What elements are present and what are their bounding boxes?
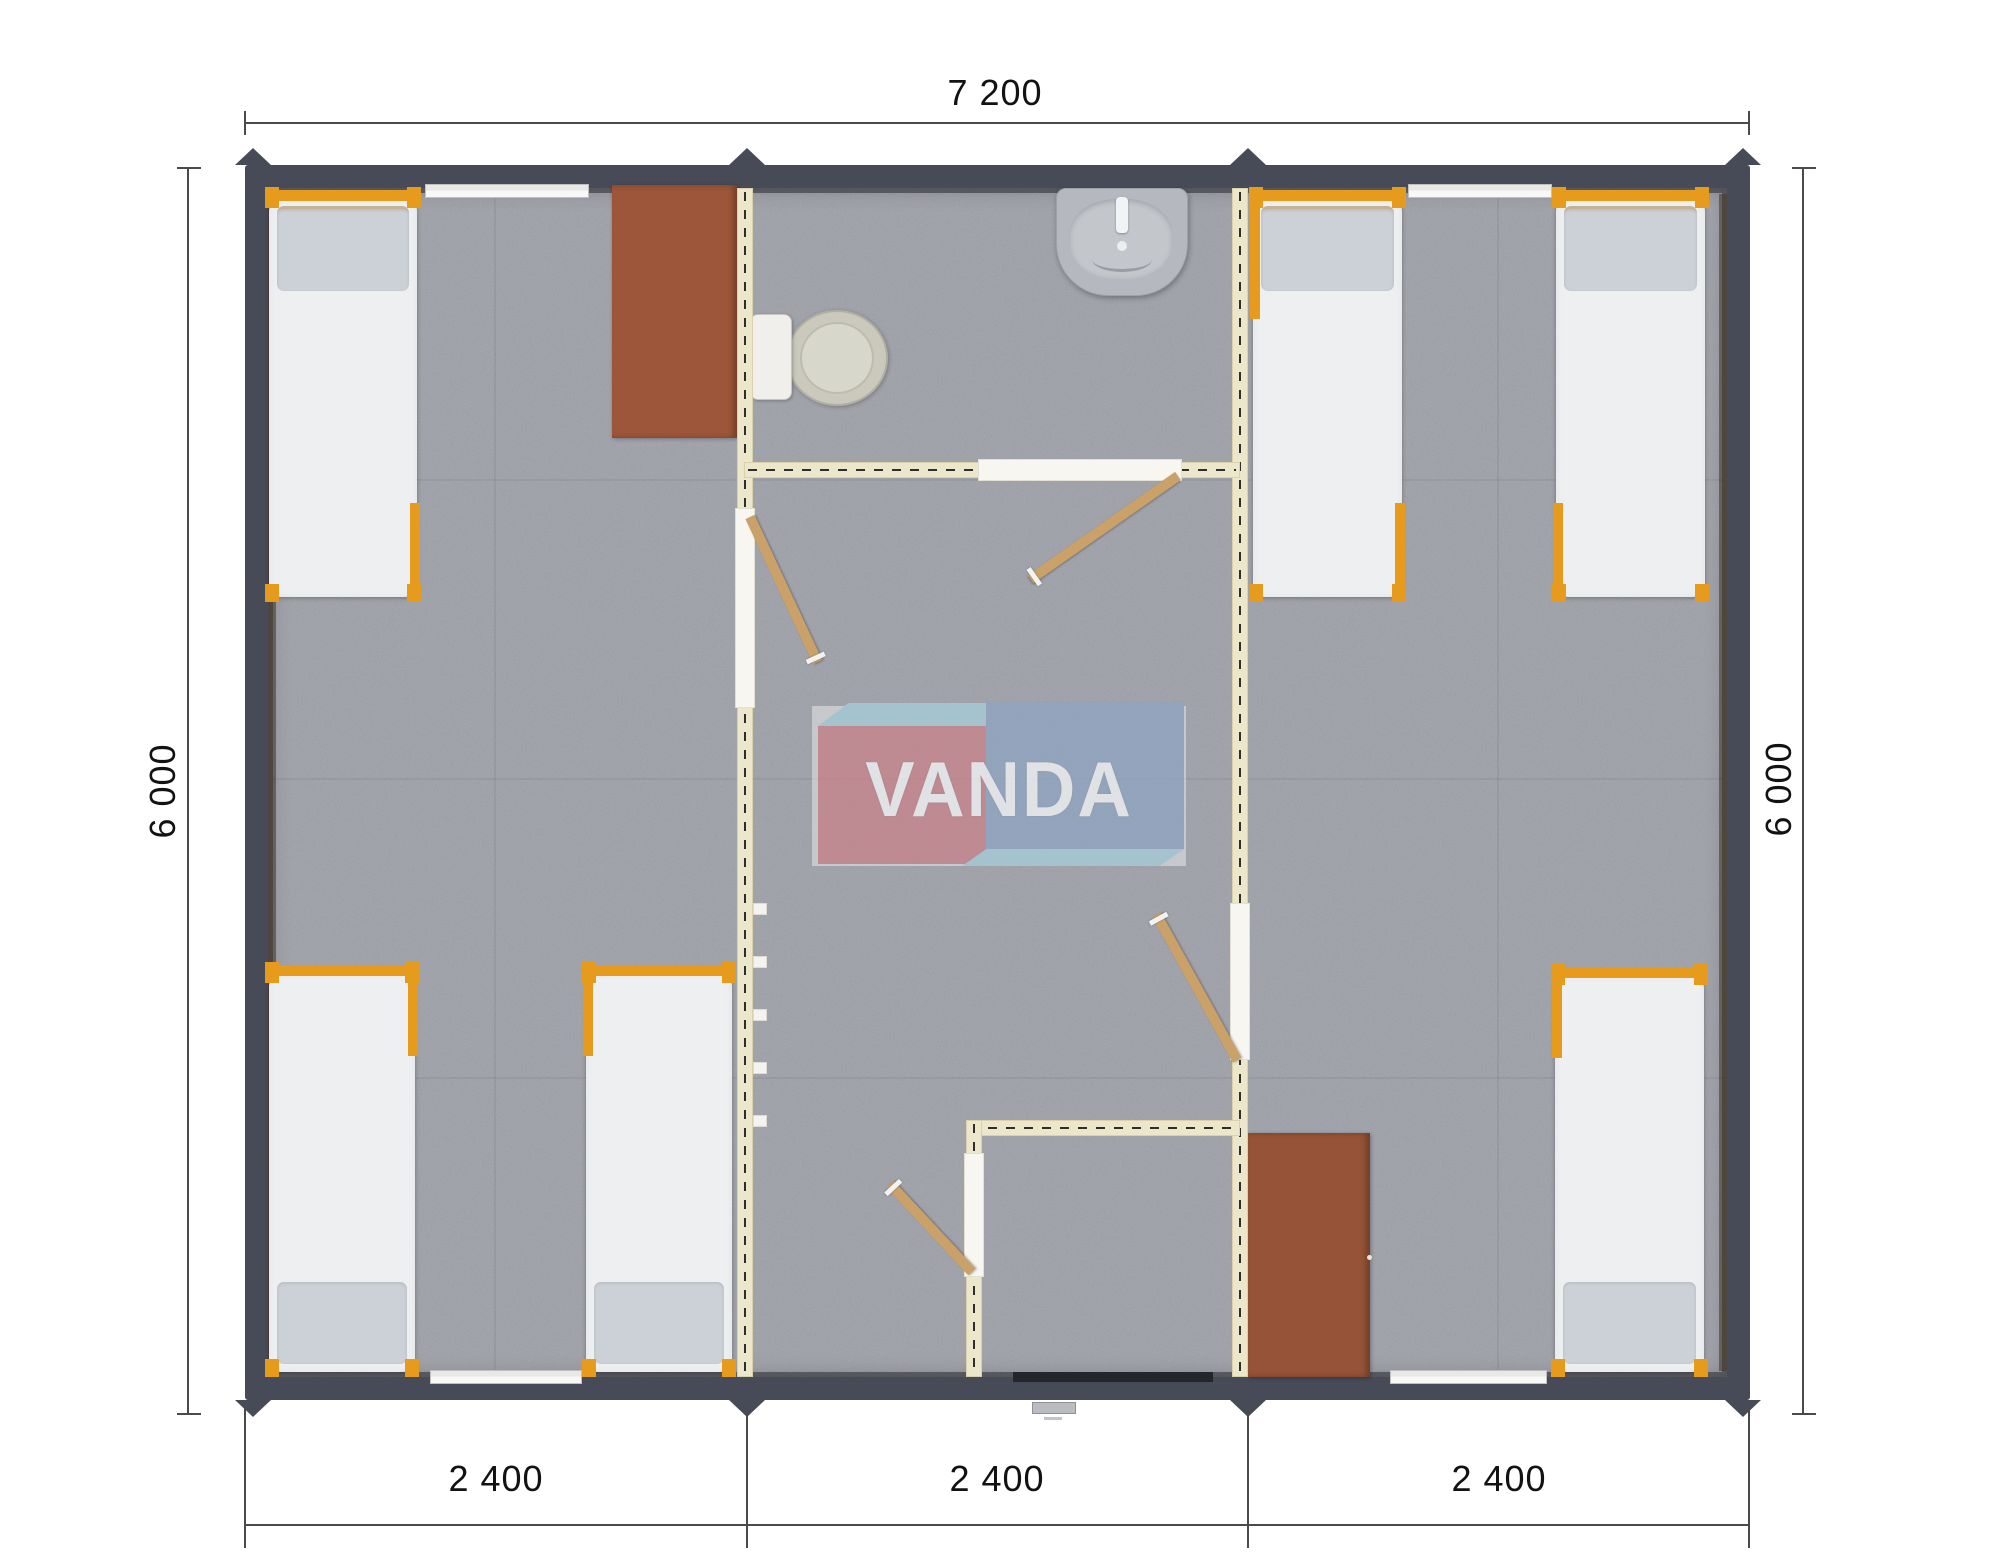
bed-frame-corner (1551, 1359, 1565, 1377)
desk (1248, 1133, 1370, 1377)
logo-bevel-bottom (962, 849, 1184, 866)
partition-wall-right (1232, 188, 1248, 1377)
roof-joint-marker (729, 148, 765, 165)
floor-plan: 7 200 6 000 6 000 2 400 2 400 2 400 (0, 0, 2000, 1566)
dimension-left-label: 6 000 (142, 691, 184, 891)
window-top-left (425, 184, 589, 198)
bed-frame-rail (1553, 503, 1563, 599)
door-opening-bathroom (978, 459, 1182, 481)
bed-frame-bar (1553, 190, 1708, 201)
bed (1553, 190, 1708, 602)
dimension-left-tick-top (177, 167, 201, 169)
bed (266, 190, 420, 602)
bed-frame-bar (1250, 190, 1405, 201)
dimension-bottom-tick-2 (746, 1408, 748, 1548)
bed (1250, 190, 1405, 602)
dimension-right-line (1802, 168, 1804, 1415)
bed-frame-corner (265, 187, 279, 208)
dimension-left-tick-bottom (177, 1413, 201, 1415)
door-opening-left-room (735, 508, 755, 708)
bed-frame-rail (410, 503, 420, 599)
shower-room-wall-top (966, 1120, 1240, 1136)
bed-frame-bar (266, 190, 420, 201)
wall-stud-marker (753, 903, 767, 915)
bed-frame-rail (583, 974, 593, 1056)
bed-frame-corner (265, 962, 279, 983)
bed-frame-bar (266, 965, 418, 976)
bed-frame-rail (1250, 199, 1260, 319)
logo-text: VANDA (838, 750, 1161, 828)
dimension-bottom-tick-4 (1748, 1408, 1750, 1548)
window-top-right (1408, 184, 1552, 198)
dimension-bottom-tick-3 (1247, 1408, 1249, 1548)
bed-frame-rail (1552, 976, 1562, 1058)
dimension-bottom-label-1: 2 400 (346, 1458, 646, 1500)
toilet-seat (800, 322, 874, 394)
faucet-icon (1116, 197, 1128, 233)
roof-joint-marker (1230, 148, 1266, 165)
dimension-top-tick-right (1748, 111, 1750, 135)
bed-frame-corner (1695, 187, 1709, 208)
roof-joint-marker (235, 1400, 271, 1417)
dimension-top-label: 7 200 (845, 72, 1145, 114)
bed-frame-rail (408, 974, 418, 1056)
dimension-bottom-label-2: 2 400 (847, 1458, 1147, 1500)
bed-frame-corner (582, 1359, 596, 1377)
wall-stud-marker (753, 1009, 767, 1021)
bed-frame-corner (265, 584, 279, 602)
door-opening-right-room (1230, 903, 1250, 1060)
wall-stud-marker (753, 1115, 767, 1127)
entrance-step (1032, 1402, 1076, 1414)
wall-lining-right (1719, 194, 1727, 1371)
toilet-tank (750, 314, 792, 400)
bed-frame-rail (1395, 503, 1405, 599)
entrance-step-edge (1044, 1417, 1062, 1420)
carpet-seam (272, 1077, 1723, 1079)
bed-frame-corner (1695, 584, 1709, 602)
bed-frame-corner (265, 1359, 279, 1377)
bed (1552, 967, 1707, 1377)
entrance-door-threshold (1013, 1372, 1213, 1382)
dimension-bottom-label-3: 2 400 (1349, 1458, 1649, 1500)
bed-frame-corner (405, 1359, 419, 1377)
wall-stud-marker (753, 1062, 767, 1074)
toilet (750, 308, 888, 404)
bed (583, 965, 735, 1377)
dimension-top-line (245, 122, 1750, 124)
desk-handle (1367, 1255, 1372, 1260)
bed-frame-corner (722, 1359, 736, 1377)
bed-frame-corner (722, 962, 736, 983)
bed-frame-corner (1249, 584, 1263, 602)
bed (266, 965, 418, 1377)
dimension-right-tick-top (1792, 167, 1816, 169)
dimension-right-label: 6 000 (1758, 689, 1800, 889)
dimension-bottom-tick-1 (244, 1408, 246, 1548)
bed-frame-corner (1552, 187, 1566, 208)
dimension-right-tick-bottom (1792, 1413, 1816, 1415)
bed-frame-corner (407, 187, 421, 208)
bed-frame-corner (1694, 964, 1708, 985)
washbasin (1056, 188, 1188, 296)
window-bottom-left (430, 1370, 582, 1384)
window-bottom-right (1390, 1370, 1547, 1384)
bed-pillow (1564, 206, 1697, 291)
bed-pillow (277, 1282, 407, 1364)
carpet-seam (494, 194, 496, 1371)
dimension-left-line (187, 168, 189, 1415)
roof-joint-marker (1725, 148, 1761, 165)
bed-pillow (1261, 206, 1394, 291)
drain-icon (1117, 241, 1127, 251)
bed-frame-bar (583, 965, 735, 976)
bed-pillow (594, 1282, 724, 1364)
dimension-bottom-line (245, 1524, 1750, 1526)
bed-frame-bar (1552, 967, 1707, 978)
roof-joint-marker (1725, 1400, 1761, 1417)
dimension-top-tick-left (244, 111, 246, 135)
vanda-logo-watermark: VANDA (810, 698, 1188, 874)
roof-joint-marker (235, 148, 271, 165)
desk (612, 185, 737, 438)
partition-wall-left (737, 188, 753, 1377)
carpet-seam (1497, 194, 1499, 1371)
bed-pillow (277, 206, 409, 291)
bed-pillow (1563, 1282, 1696, 1364)
wall-stud-marker (753, 956, 767, 968)
bed-frame-corner (1694, 1359, 1708, 1377)
bed-frame-corner (1392, 187, 1406, 208)
